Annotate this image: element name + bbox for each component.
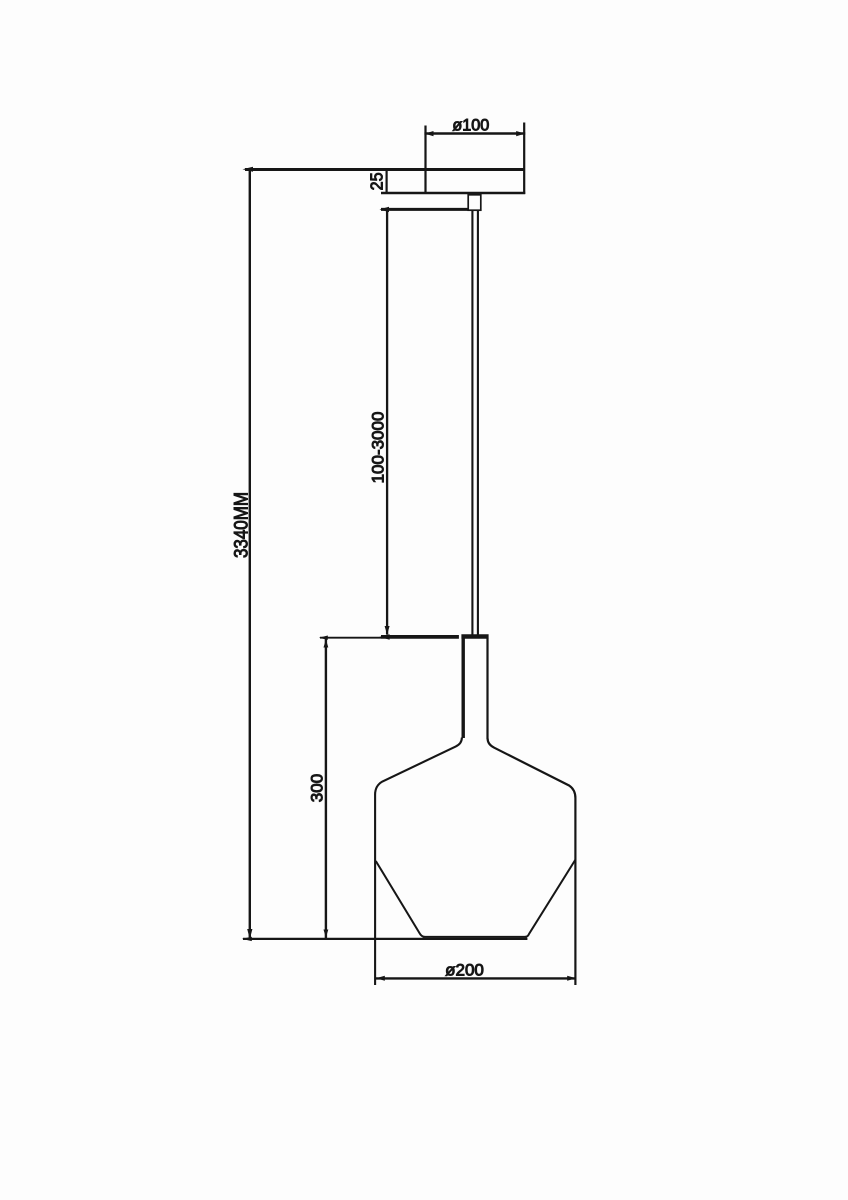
svg-text:300: 300 <box>308 774 327 802</box>
svg-text:ø200: ø200 <box>445 960 484 979</box>
svg-text:3340MM: 3340MM <box>231 492 252 558</box>
svg-text:ø100: ø100 <box>452 117 489 135</box>
svg-text:25: 25 <box>367 172 387 190</box>
svg-text:100-3000: 100-3000 <box>368 412 387 484</box>
